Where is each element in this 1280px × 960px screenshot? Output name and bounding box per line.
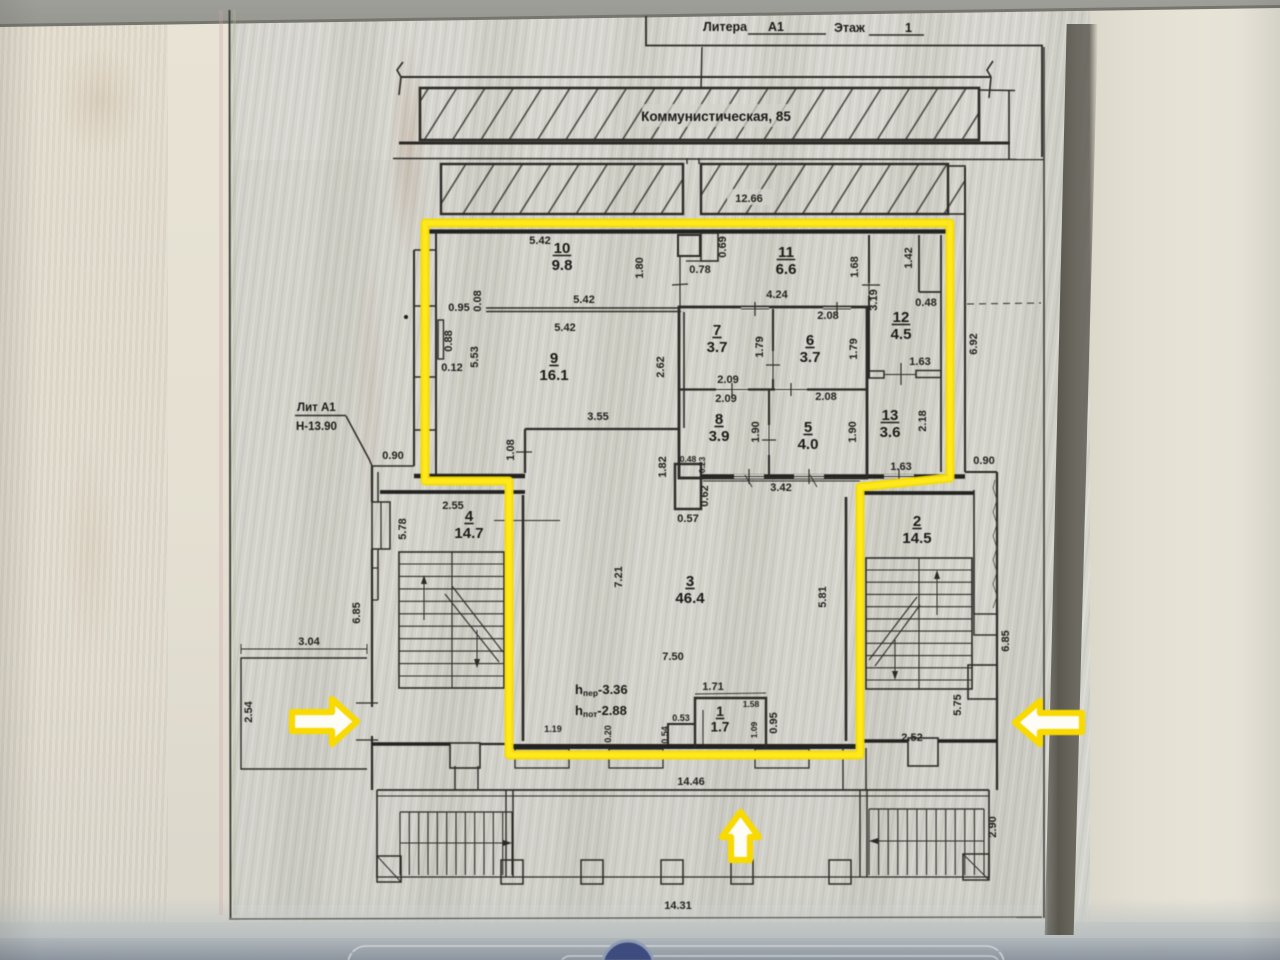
svg-text:1.80: 1.80 — [634, 257, 646, 278]
svg-text:0.48: 0.48 — [915, 297, 936, 309]
svg-text:Коммунистическая, 85: Коммунистическая, 85 — [641, 109, 791, 124]
svg-text:1.7: 1.7 — [711, 720, 730, 735]
svg-text:5.78: 5.78 — [397, 518, 409, 539]
svg-text:А1: А1 — [768, 20, 784, 34]
svg-text:9.8: 9.8 — [552, 257, 573, 274]
svg-text:Литера: Литера — [703, 20, 748, 34]
svg-text:14.7: 14.7 — [454, 525, 483, 542]
svg-text:1.79: 1.79 — [848, 338, 860, 359]
svg-text:1.90: 1.90 — [750, 421, 762, 442]
svg-text:1.68: 1.68 — [849, 256, 861, 277]
svg-text:13: 13 — [882, 407, 899, 424]
svg-text:1.71: 1.71 — [702, 681, 723, 693]
svg-text:6.92: 6.92 — [968, 333, 980, 354]
svg-text:1.42: 1.42 — [903, 247, 915, 268]
svg-text:3.7: 3.7 — [707, 339, 728, 356]
svg-text:4: 4 — [465, 508, 474, 525]
svg-text:2.18: 2.18 — [917, 410, 929, 431]
svg-text:1.19: 1.19 — [544, 724, 562, 734]
svg-text:6.6: 6.6 — [776, 261, 797, 278]
svg-text:6: 6 — [806, 332, 814, 349]
svg-text:hпер-3.36: hпер-3.36 — [575, 682, 628, 698]
svg-text:5.81: 5.81 — [817, 586, 829, 607]
svg-text:1: 1 — [716, 704, 724, 719]
svg-text:4.0: 4.0 — [798, 436, 819, 453]
svg-text:3.04: 3.04 — [298, 636, 320, 648]
svg-text:6.85: 6.85 — [351, 602, 363, 623]
svg-text:0.20: 0.20 — [603, 725, 613, 743]
svg-text:5.42: 5.42 — [554, 322, 575, 334]
svg-text:4.24: 4.24 — [766, 289, 788, 301]
svg-text:5.53: 5.53 — [469, 346, 481, 367]
svg-text:3.42: 3.42 — [770, 482, 791, 494]
svg-text:0.78: 0.78 — [689, 264, 710, 276]
svg-text:0.95: 0.95 — [768, 712, 780, 733]
svg-text:Лит А1: Лит А1 — [297, 402, 336, 414]
svg-text:16.1: 16.1 — [539, 367, 568, 384]
svg-text:2.90: 2.90 — [987, 816, 999, 837]
svg-text:3.7: 3.7 — [800, 349, 821, 366]
svg-text:14.5: 14.5 — [902, 530, 931, 547]
svg-text:1.09: 1.09 — [749, 721, 759, 738]
svg-text:0.69: 0.69 — [717, 236, 729, 257]
svg-text:0.48: 0.48 — [680, 454, 697, 464]
svg-text:12: 12 — [893, 309, 910, 326]
svg-text:2.08: 2.08 — [817, 310, 838, 322]
svg-text:1.08: 1.08 — [505, 439, 517, 460]
svg-text:0.88: 0.88 — [443, 330, 455, 351]
svg-text:5.75: 5.75 — [952, 694, 964, 715]
svg-text:5.42: 5.42 — [529, 235, 550, 247]
svg-text:14.46: 14.46 — [677, 776, 705, 788]
svg-text:hпот-2.88: hпот-2.88 — [575, 703, 627, 719]
svg-text:0.57: 0.57 — [677, 513, 698, 525]
svg-text:1.63: 1.63 — [909, 356, 930, 368]
svg-text:3: 3 — [686, 573, 694, 590]
svg-text:2: 2 — [913, 513, 921, 530]
svg-text:6.85: 6.85 — [1000, 630, 1012, 651]
svg-text:3.9: 3.9 — [709, 428, 730, 445]
svg-text:11: 11 — [778, 244, 794, 261]
svg-text:0.90: 0.90 — [382, 450, 403, 462]
svg-text:5: 5 — [804, 419, 812, 436]
svg-text:0.95: 0.95 — [448, 302, 469, 314]
svg-text:14.31: 14.31 — [664, 900, 692, 912]
svg-text:0.62: 0.62 — [699, 485, 711, 506]
svg-text:3.55: 3.55 — [587, 411, 608, 423]
svg-text:2.52: 2.52 — [901, 732, 922, 744]
svg-text:2.55: 2.55 — [442, 500, 463, 512]
svg-text:0.54: 0.54 — [660, 726, 670, 744]
svg-text:Этаж: Этаж — [834, 21, 865, 35]
svg-text:1: 1 — [905, 21, 912, 35]
svg-text:2.62: 2.62 — [655, 356, 667, 377]
svg-text:7.50: 7.50 — [662, 651, 683, 663]
svg-text:0.12: 0.12 — [441, 362, 462, 374]
svg-text:2.08: 2.08 — [815, 391, 836, 403]
svg-text:0.90: 0.90 — [973, 455, 994, 467]
svg-text:0.53: 0.53 — [672, 713, 690, 723]
svg-text:4.5: 4.5 — [891, 326, 912, 343]
svg-text:0.08: 0.08 — [472, 290, 484, 311]
svg-text:1.79: 1.79 — [754, 336, 766, 357]
svg-text:2.54: 2.54 — [243, 700, 255, 722]
svg-text:2.09: 2.09 — [715, 393, 736, 405]
svg-text:7.21: 7.21 — [613, 566, 625, 587]
svg-text:1.90: 1.90 — [847, 421, 859, 442]
svg-text:3.19: 3.19 — [868, 289, 880, 310]
svg-text:10: 10 — [554, 240, 571, 257]
svg-text:Н-13.90: Н-13.90 — [296, 421, 337, 433]
svg-text:5.42: 5.42 — [573, 294, 594, 306]
svg-text:3.6: 3.6 — [880, 424, 901, 441]
svg-text:12.66: 12.66 — [735, 193, 763, 205]
svg-text:46.4: 46.4 — [675, 590, 705, 607]
svg-text:2.09: 2.09 — [717, 374, 738, 386]
svg-text:7: 7 — [713, 322, 721, 339]
svg-text:0.23: 0.23 — [697, 456, 707, 473]
svg-text:1.63: 1.63 — [890, 461, 911, 473]
svg-text:1.82: 1.82 — [657, 456, 669, 477]
svg-text:1.58: 1.58 — [743, 699, 760, 709]
svg-text:9: 9 — [550, 350, 558, 367]
svg-text:8: 8 — [715, 411, 723, 428]
